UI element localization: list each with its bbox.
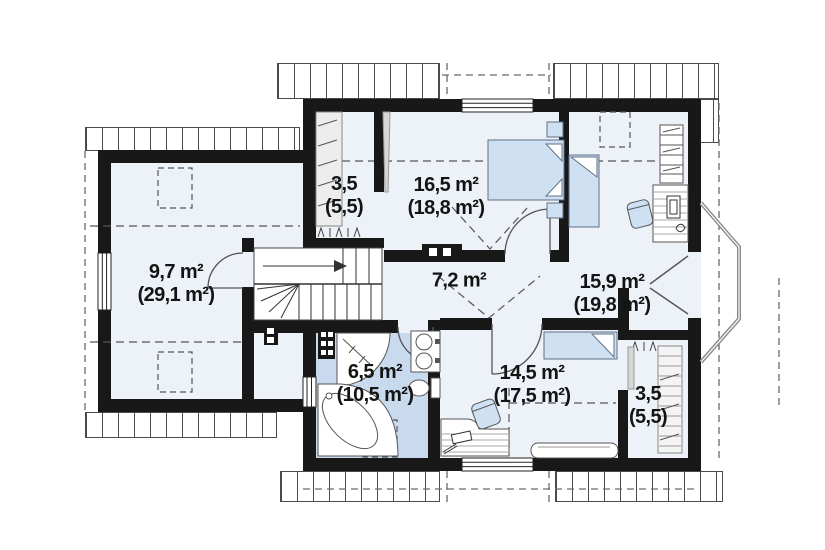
wall	[533, 458, 701, 471]
floor-plan: 9,7 m² (29,1 m²) 3,5 (5,5) 16,5 m² (18,8…	[0, 0, 825, 550]
room-label-hall-7-2: 7,2 m²	[432, 270, 486, 293]
wall	[303, 238, 384, 248]
wall	[98, 150, 111, 253]
room-area-total: (5,5)	[325, 196, 363, 219]
wall	[559, 99, 569, 262]
roof-overhang-hatch	[277, 63, 440, 99]
wall	[384, 250, 505, 262]
wall	[98, 310, 111, 412]
wall	[98, 150, 316, 163]
wall	[316, 320, 398, 333]
room-label-wardrobe-bottom: 3,5 (5,5)	[629, 383, 667, 429]
roof-overhang-hatch	[555, 471, 723, 502]
wall	[303, 99, 462, 112]
room-area: 3,5	[629, 383, 667, 406]
room-label-14-5: 14,5 m² (17,5 m²)	[494, 362, 571, 408]
room-area-total: (19,8 m²)	[574, 294, 651, 317]
room-area-total: (29,1 m²)	[138, 284, 215, 307]
room-area: 16,5 m²	[408, 174, 485, 197]
room-area-total: (18,8 m²)	[408, 197, 485, 220]
room-area: 6,5 m²	[337, 361, 414, 384]
wall	[440, 318, 492, 330]
wall	[242, 238, 254, 252]
wall	[688, 99, 701, 252]
room-area: 7,2 m²	[432, 270, 486, 293]
room-area-total: (5,5)	[629, 406, 667, 429]
room-area: 9,7 m²	[138, 261, 215, 284]
wall	[542, 318, 629, 330]
wall	[618, 390, 628, 458]
room-label-bathroom-6-5: 6,5 m² (10,5 m²)	[337, 361, 414, 407]
room-area-total: (10,5 m²)	[337, 384, 414, 407]
room-area-total: (17,5 m²)	[494, 385, 571, 408]
room-area: 15,9 m²	[574, 271, 651, 294]
wall	[98, 399, 316, 412]
wall	[688, 318, 701, 471]
wall	[303, 458, 462, 471]
room-label-15-9: 15,9 m² (19,8 m²)	[574, 271, 651, 317]
room-label-bedroom-16-5: 16,5 m² (18,8 m²)	[408, 174, 485, 220]
room-label-wardrobe-top: 3,5 (5,5)	[325, 173, 363, 219]
wall	[254, 320, 316, 333]
roof-overhang-hatch	[553, 63, 719, 99]
roof-overhang-hatch	[85, 127, 300, 151]
wall	[428, 320, 440, 458]
room-label-9-7: 9,7 m² (29,1 m²)	[138, 261, 215, 307]
wall	[242, 287, 254, 412]
roof-overhang-hatch	[280, 471, 440, 502]
staircase-area	[254, 248, 382, 320]
wall	[303, 407, 316, 471]
roof-overhang-hatch	[85, 412, 277, 438]
wall	[618, 330, 688, 340]
wall	[550, 250, 559, 262]
wall	[374, 112, 384, 192]
room-area: 3,5	[325, 173, 363, 196]
room-area: 14,5 m²	[494, 362, 571, 385]
